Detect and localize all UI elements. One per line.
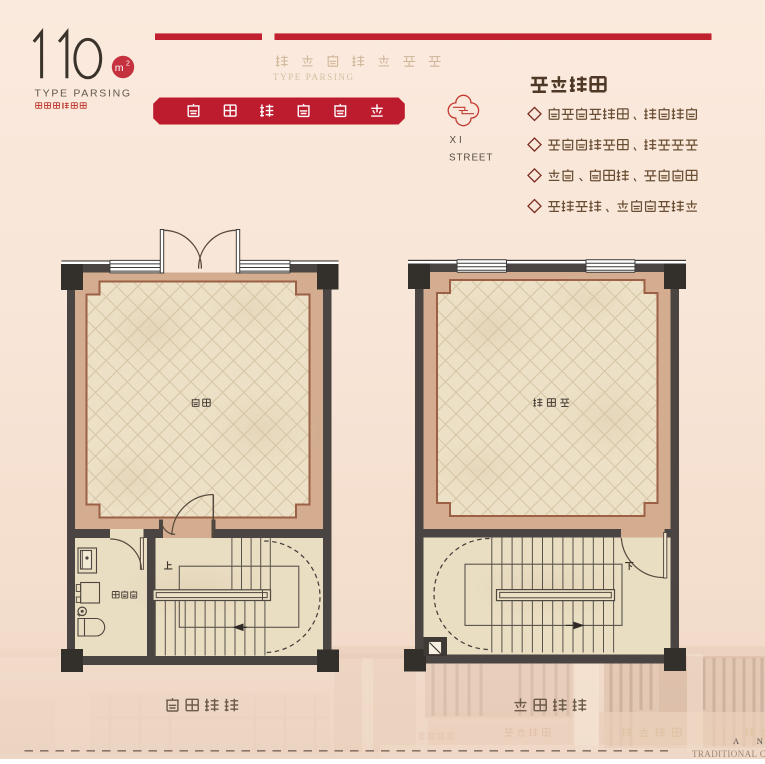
svg-text:TRADITIONAL CHI: TRADITIONAL CHI [692,749,765,759]
svg-text:A N C: A N C [733,736,765,746]
svg-text:TYPE PARSING: TYPE PARSING [273,72,355,82]
svg-text:m: m [115,62,124,74]
svg-text:TYPE PARSING: TYPE PARSING [35,87,132,99]
svg-text:XI: XI [450,135,465,146]
svg-text:2: 2 [126,61,130,68]
svg-text:STREET: STREET [449,153,493,164]
